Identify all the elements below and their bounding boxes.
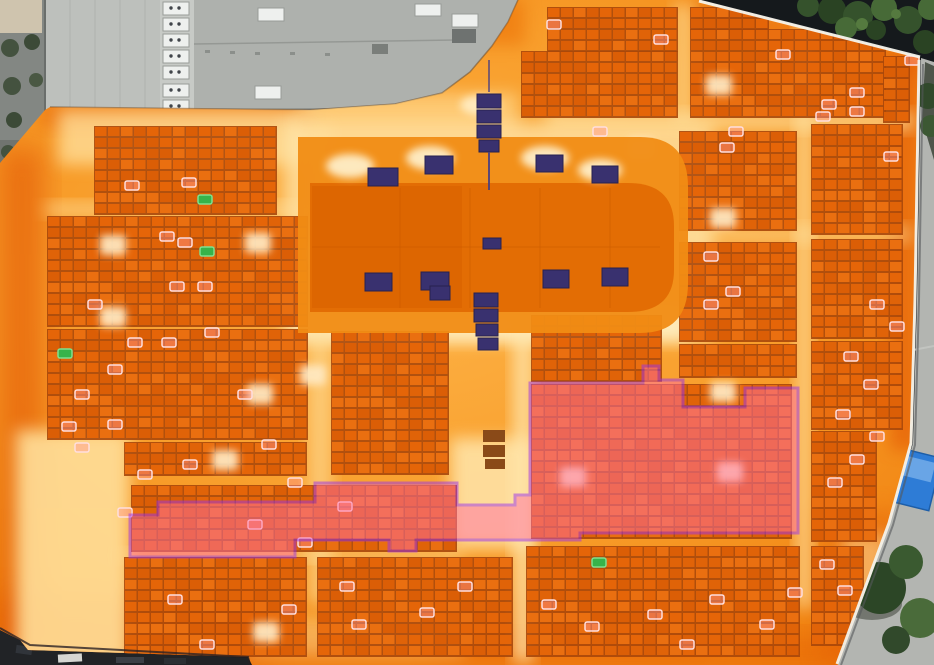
anomaly-panel-marker[interactable] <box>680 640 694 649</box>
rooftop-unit <box>163 2 189 15</box>
rooftop-unit-dark <box>452 29 476 43</box>
anomaly-panel-marker[interactable] <box>870 432 884 441</box>
vehicle <box>58 653 82 662</box>
panel-array-west <box>94 126 277 215</box>
panel-array-top-right <box>883 56 910 123</box>
hvac-unit <box>592 166 618 183</box>
anomaly-panel-marker[interactable] <box>648 610 662 619</box>
neighbor-building-item <box>177 104 180 107</box>
neighbor-building-item <box>177 6 180 9</box>
hvac-unit <box>483 238 501 249</box>
neighbor-building-item <box>325 53 330 56</box>
neighbor-building-item <box>177 88 180 91</box>
anomaly-panel-marker[interactable] <box>108 365 122 374</box>
anomaly-panel-marker[interactable] <box>88 300 102 309</box>
anomaly-panel-marker[interactable] <box>75 443 89 452</box>
rooftop-unit <box>163 18 189 31</box>
skylight <box>706 75 732 95</box>
neighbor-building-item <box>177 70 180 73</box>
anomaly-panel-marker[interactable] <box>420 608 434 617</box>
neighbor-building-item <box>169 88 172 91</box>
panel-array-top-left <box>547 7 678 52</box>
healthy-panel-marker[interactable] <box>58 349 72 358</box>
healthy-panel-marker[interactable] <box>198 195 212 204</box>
rooftop-unit-dark <box>372 44 388 54</box>
bush <box>3 77 21 95</box>
anomaly-panel-marker[interactable] <box>850 88 864 97</box>
anomaly-panel-marker[interactable] <box>788 588 802 597</box>
mast-equipment <box>477 110 501 123</box>
anomaly-panel-marker[interactable] <box>585 622 599 631</box>
hvac-unit <box>430 286 450 300</box>
neighbor-building-item <box>169 54 172 57</box>
adjacent-building-corner <box>0 0 42 33</box>
skylight <box>300 365 326 385</box>
skylight <box>710 208 736 228</box>
neighbor-building-item <box>169 22 172 25</box>
anomaly-panel-marker[interactable] <box>282 605 296 614</box>
anomaly-panel-marker[interactable] <box>870 300 884 309</box>
panel-array-east <box>811 239 903 339</box>
anomaly-panel-marker[interactable] <box>844 352 858 361</box>
anomaly-panel-marker[interactable] <box>183 460 197 469</box>
heat-zones-item <box>16 430 130 664</box>
anomaly-panel-marker[interactable] <box>822 100 836 109</box>
neighbor-building-item <box>230 51 235 54</box>
anomaly-panel-marker[interactable] <box>542 600 556 609</box>
anomaly-panel-marker[interactable] <box>178 238 192 247</box>
central-structure-item <box>326 154 374 178</box>
anomaly-panel-marker[interactable] <box>458 582 472 591</box>
anomaly-panel-marker[interactable] <box>75 390 89 399</box>
walkway-equipment <box>483 430 505 442</box>
walkway-equipment <box>483 445 505 457</box>
scene-svg[interactable] <box>0 0 934 665</box>
rooftop-unit <box>163 50 189 63</box>
hvac-unit <box>602 268 628 286</box>
panel-array-east <box>679 344 797 378</box>
anomaly-panel-marker[interactable] <box>726 287 740 296</box>
hvac-unit <box>425 156 453 174</box>
panel-array-east <box>811 431 877 542</box>
tree <box>856 18 868 30</box>
skylight <box>710 382 736 402</box>
rooftop-unit <box>163 84 189 97</box>
anomaly-panel-marker[interactable] <box>720 143 734 152</box>
pipe-rack <box>474 309 498 322</box>
anomaly-panel-marker[interactable] <box>170 282 184 291</box>
anomaly-panel-marker[interactable] <box>816 112 830 121</box>
hvac-unit <box>365 273 392 291</box>
anomaly-panel-marker[interactable] <box>836 410 850 419</box>
anomaly-panel-marker[interactable] <box>838 586 852 595</box>
anomaly-panel-marker[interactable] <box>125 181 139 190</box>
anomaly-panel-marker[interactable] <box>547 20 561 29</box>
anomaly-panel-marker[interactable] <box>162 338 176 347</box>
panel-array-west <box>47 216 308 327</box>
anomaly-panel-marker[interactable] <box>288 478 302 487</box>
anomaly-panel-marker[interactable] <box>62 422 76 431</box>
pipe-rack <box>474 293 498 307</box>
skylight <box>253 622 279 642</box>
panel-array-south <box>317 557 513 657</box>
neighbor-building-item <box>205 50 210 53</box>
anomaly-panel-marker[interactable] <box>340 582 354 591</box>
hvac-unit <box>368 168 398 186</box>
anomaly-panel-marker[interactable] <box>160 232 174 241</box>
neighbor-building-item <box>255 52 260 55</box>
skylight <box>245 233 271 253</box>
bush <box>1 39 19 57</box>
healthy-panel-marker[interactable] <box>592 558 606 567</box>
vehicle <box>164 658 186 664</box>
neighbor-building-item <box>177 38 180 41</box>
anomaly-panel-marker[interactable] <box>704 300 718 309</box>
anomaly-panel-marker[interactable] <box>138 470 152 479</box>
rooftop-unit <box>255 86 281 99</box>
bush <box>24 34 40 50</box>
panel-array-south <box>526 546 800 657</box>
mast-equipment <box>477 94 501 108</box>
panel-array-east <box>811 124 903 235</box>
tree <box>882 626 910 654</box>
bush <box>29 73 43 87</box>
healthy-panel-marker[interactable] <box>200 247 214 256</box>
anomaly-panel-marker[interactable] <box>593 127 607 136</box>
neighbor-building-item <box>177 54 180 57</box>
hvac-unit <box>536 155 563 172</box>
walkway-equipment <box>485 459 505 469</box>
anomaly-panel-marker[interactable] <box>205 328 219 337</box>
rooftop-unit <box>415 4 441 16</box>
hvac-unit <box>543 270 569 288</box>
anomaly-panel-marker[interactable] <box>238 390 252 399</box>
panel-array-center <box>331 331 449 475</box>
map-canvas[interactable] <box>0 0 934 665</box>
mast-equipment <box>477 125 501 138</box>
tree <box>889 545 923 579</box>
panel-array-top-left <box>521 51 678 118</box>
neighbor-building-item <box>177 22 180 25</box>
neighbor-building-item <box>169 70 172 73</box>
anomaly-panel-marker[interactable] <box>710 595 724 604</box>
anomaly-panel-marker[interactable] <box>200 640 214 649</box>
neighbor-building-item <box>290 52 295 55</box>
anomaly-panel-marker[interactable] <box>168 595 182 604</box>
anomaly-panel-marker[interactable] <box>729 127 743 136</box>
mast-equipment <box>479 140 499 152</box>
neighbor-building-item <box>169 38 172 41</box>
panel-array-south <box>124 557 307 657</box>
neighbor-building-item <box>169 6 172 9</box>
anomaly-panel-marker[interactable] <box>760 620 774 629</box>
neighbor-building-item <box>169 104 172 107</box>
anomaly-panel-marker[interactable] <box>654 35 668 44</box>
anomaly-panel-marker[interactable] <box>704 252 718 261</box>
anomaly-panel-marker[interactable] <box>776 50 790 59</box>
skylight <box>100 307 126 327</box>
rooftop-unit <box>258 8 284 21</box>
anomaly-panel-marker[interactable] <box>850 455 864 464</box>
vehicle <box>116 657 144 663</box>
rooftop-unit <box>452 14 478 27</box>
rooftop-unit <box>163 66 189 79</box>
anomaly-panel-marker[interactable] <box>820 560 834 569</box>
tree <box>891 9 901 19</box>
anomaly-panel-marker[interactable] <box>128 338 142 347</box>
pipe-rack <box>478 338 498 350</box>
anomaly-panel-marker[interactable] <box>850 107 864 116</box>
skylight <box>212 450 238 470</box>
anomaly-panel-marker[interactable] <box>828 478 842 487</box>
pipe-rack <box>476 324 498 336</box>
rooftop-unit <box>163 34 189 47</box>
panel-array-east <box>679 131 797 231</box>
anomaly-panel-marker[interactable] <box>198 282 212 291</box>
anomaly-panel-marker[interactable] <box>890 322 904 331</box>
anomaly-panel-marker[interactable] <box>108 420 122 429</box>
anomaly-panel-marker[interactable] <box>884 152 898 161</box>
bush <box>6 112 22 128</box>
anomaly-panel-marker[interactable] <box>182 178 196 187</box>
tree <box>866 20 886 40</box>
building-roof-left <box>46 0 160 112</box>
anomaly-panel-marker[interactable] <box>864 380 878 389</box>
skylight <box>100 235 126 255</box>
anomaly-panel-marker[interactable] <box>262 440 276 449</box>
anomaly-panel-marker[interactable] <box>352 620 366 629</box>
